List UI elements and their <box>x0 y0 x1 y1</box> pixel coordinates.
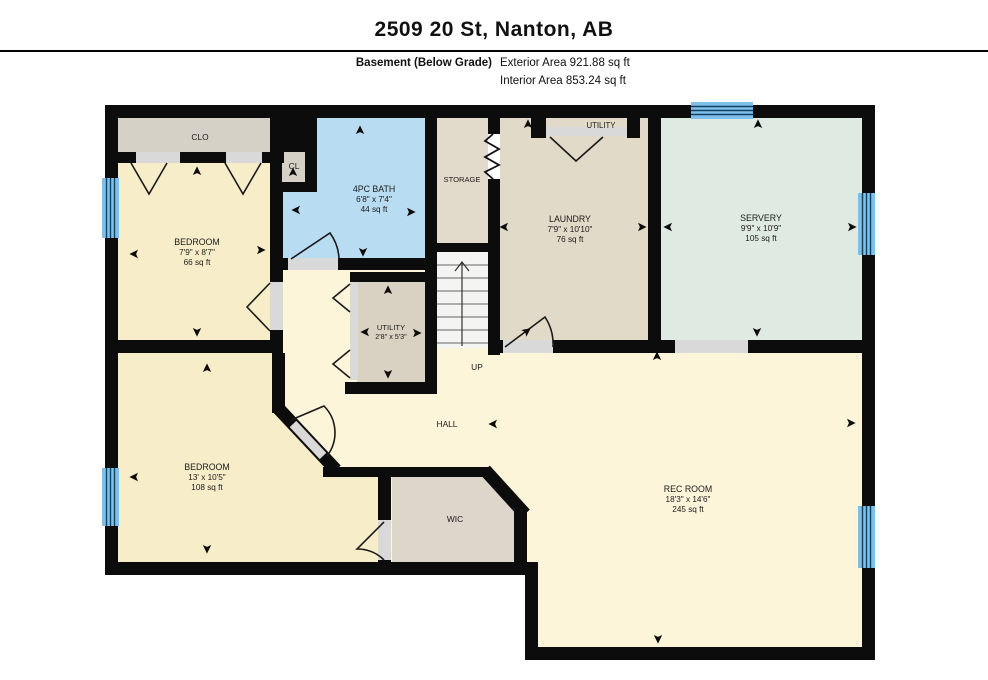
label-utility-nook: UTILITY <box>586 121 616 130</box>
wall-segment <box>425 118 437 394</box>
wall-segment <box>627 118 640 138</box>
opening-clo-right <box>226 152 262 163</box>
window-servery-right <box>858 193 875 255</box>
label-utility-closet-dims: 2'8" x 5'3" <box>375 332 407 341</box>
window-recroom-right <box>858 506 875 568</box>
wall-exterior-top <box>105 105 875 118</box>
wall-rec-left <box>525 562 538 660</box>
wall-rec-bottom <box>525 647 875 660</box>
label-servery-area: 105 sq ft <box>745 234 777 243</box>
wall-segment <box>531 118 546 138</box>
label-bedroom2-area: 108 sq ft <box>191 483 223 492</box>
label-bedroom1-name: BEDROOM <box>174 237 219 247</box>
label-laundry-dims: 7'9" x 10'10" <box>548 225 593 234</box>
label-recroom-area: 245 sq ft <box>672 505 704 514</box>
opening-servery-passage <box>675 340 748 353</box>
wall-segment <box>437 243 488 252</box>
label-servery-dims: 9'9" x 10'9" <box>741 224 781 233</box>
wall-segment <box>270 118 317 152</box>
label-bath-name: 4PC BATH <box>353 184 395 194</box>
label-wic: WIC <box>447 514 463 524</box>
opening-utility-bifold <box>350 282 358 380</box>
floorplan-page: 2509 20 St, Nanton, AB Basement (Below G… <box>0 0 988 680</box>
label-storage: STORAGE <box>444 175 481 184</box>
label-bedroom2-name: BEDROOM <box>184 462 229 472</box>
label-recroom-name: REC ROOM <box>664 484 712 494</box>
label-recroom-dims: 18'3" x 14'6" <box>666 495 711 504</box>
label-bedroom2-dims: 13' x 10'5" <box>188 473 226 482</box>
label-servery-name: SERVERY <box>740 213 782 223</box>
wall-segment <box>345 382 425 394</box>
label-bath-area: 44 sq ft <box>361 205 389 214</box>
wall-segment <box>514 508 527 566</box>
label-laundry-name: LAUNDRY <box>549 214 591 224</box>
wall-segment <box>323 467 490 477</box>
label-bedroom1-area: 66 sq ft <box>184 258 212 267</box>
wall-exterior-bottom-left <box>105 562 538 575</box>
label-bedroom1-dims: 7'9" x 8'7" <box>179 248 215 257</box>
wall-segment <box>105 340 283 353</box>
label-bath-dims: 6'8" x 7'4" <box>356 195 392 204</box>
wall-break-gap <box>488 134 500 179</box>
window-bedroom1-left <box>102 178 119 238</box>
opening-bedroom1-door <box>270 282 283 330</box>
wall-exterior-right <box>862 105 875 660</box>
label-cl: CL <box>289 161 300 171</box>
label-hall: HALL <box>437 419 458 429</box>
floor-plan: CLO CL BEDROOM 7'9" x 8'7" 66 sq ft 4PC … <box>0 0 988 680</box>
window-bedroom2-left <box>102 468 119 526</box>
wall-segment <box>648 118 661 353</box>
label-utility-closet-name: UTILITY <box>377 323 405 332</box>
window-servery-top <box>691 102 753 119</box>
label-up: UP <box>471 362 483 372</box>
opening-clo-left <box>136 152 180 163</box>
label-laundry-area: 76 sq ft <box>557 235 585 244</box>
opening-bath-door <box>288 258 338 270</box>
wall-segment <box>270 182 317 192</box>
wall-segment <box>350 272 425 282</box>
label-clo: CLO <box>191 132 209 142</box>
